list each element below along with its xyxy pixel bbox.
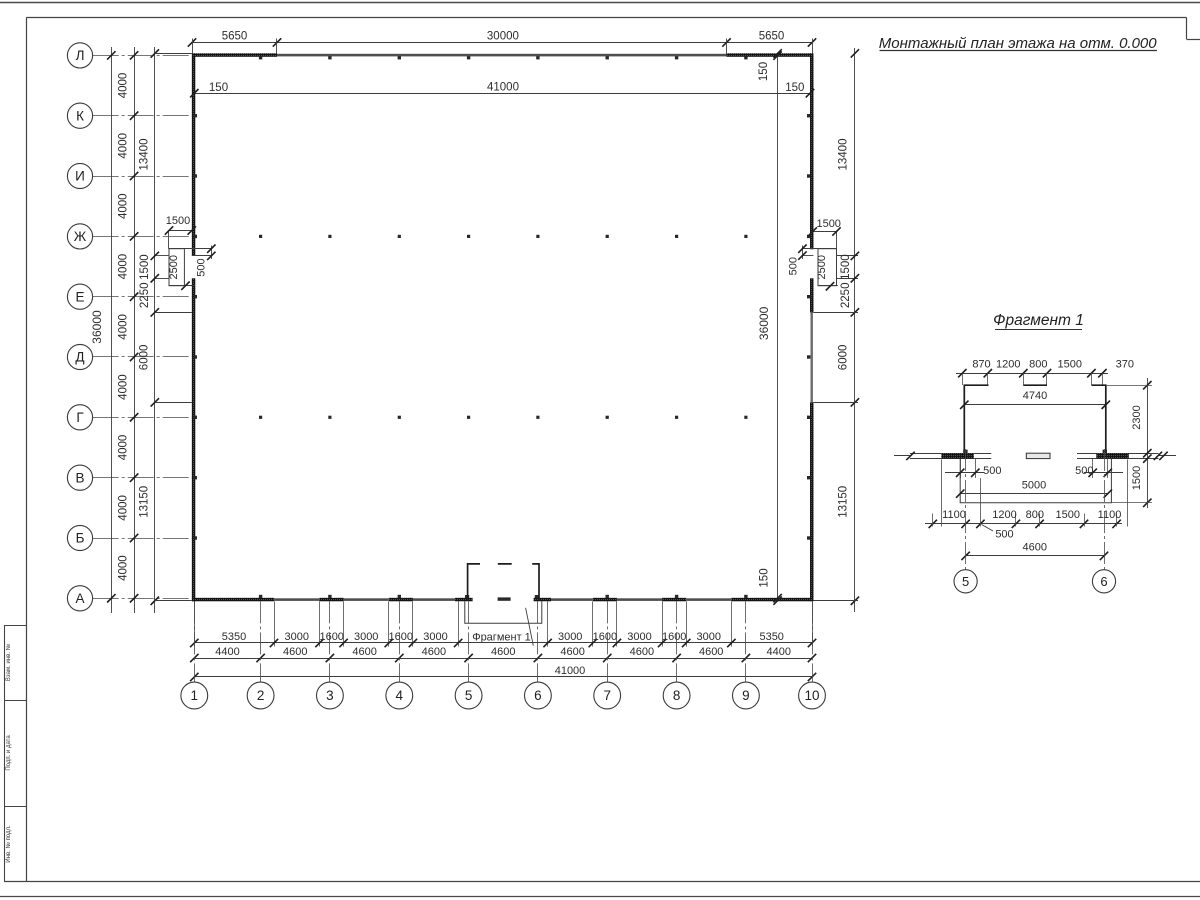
svg-text:3000: 3000 xyxy=(285,631,309,643)
svg-text:5: 5 xyxy=(465,688,473,703)
svg-text:К: К xyxy=(76,108,84,123)
svg-text:4600: 4600 xyxy=(1023,542,1047,554)
svg-text:1500: 1500 xyxy=(816,218,840,230)
svg-text:1600: 1600 xyxy=(389,631,413,643)
svg-text:6: 6 xyxy=(534,688,542,703)
svg-text:3: 3 xyxy=(326,688,334,703)
svg-text:6000: 6000 xyxy=(838,345,850,371)
svg-text:4000: 4000 xyxy=(117,73,129,99)
svg-text:13150: 13150 xyxy=(138,486,150,518)
svg-text:Е: Е xyxy=(75,289,84,304)
svg-text:2500: 2500 xyxy=(168,255,180,279)
svg-text:4000: 4000 xyxy=(117,495,129,521)
svg-text:4000: 4000 xyxy=(117,435,129,461)
svg-text:2500: 2500 xyxy=(816,255,828,279)
svg-text:Г: Г xyxy=(76,410,84,425)
svg-text:3000: 3000 xyxy=(697,631,721,643)
svg-text:Инв. № подл.: Инв. № подл. xyxy=(5,825,12,863)
svg-text:1600: 1600 xyxy=(319,631,343,643)
svg-text:150: 150 xyxy=(209,82,228,94)
svg-text:4600: 4600 xyxy=(422,646,446,658)
svg-text:1500: 1500 xyxy=(139,254,151,280)
svg-text:Л: Л xyxy=(76,48,85,63)
svg-text:3000: 3000 xyxy=(423,631,447,643)
svg-text:8: 8 xyxy=(673,688,681,703)
svg-text:4000: 4000 xyxy=(117,254,129,280)
svg-text:36000: 36000 xyxy=(90,310,104,344)
svg-text:5350: 5350 xyxy=(222,631,246,643)
svg-text:4600: 4600 xyxy=(630,646,654,658)
svg-text:500: 500 xyxy=(995,529,1013,541)
svg-text:800: 800 xyxy=(1029,358,1047,370)
svg-text:1200: 1200 xyxy=(992,509,1016,521)
svg-text:2250: 2250 xyxy=(139,283,151,309)
svg-text:370: 370 xyxy=(1116,358,1134,370)
svg-text:Фрагмент 1: Фрагмент 1 xyxy=(472,632,531,644)
svg-text:Б: Б xyxy=(76,531,85,546)
svg-text:4400: 4400 xyxy=(767,646,791,658)
svg-text:5350: 5350 xyxy=(759,631,783,643)
svg-text:13150: 13150 xyxy=(838,486,850,518)
svg-text:41000: 41000 xyxy=(555,665,586,677)
svg-text:Монтажный план этажа на отм. 0: Монтажный план этажа на отм. 0.000 xyxy=(879,35,1157,52)
svg-text:1200: 1200 xyxy=(996,358,1020,370)
svg-text:800: 800 xyxy=(1026,509,1044,521)
svg-text:А: А xyxy=(75,591,84,606)
svg-text:6: 6 xyxy=(1100,574,1107,589)
svg-text:Взам. инв. №: Взам. инв. № xyxy=(5,644,12,681)
svg-text:1500: 1500 xyxy=(1056,509,1080,521)
svg-text:1500: 1500 xyxy=(166,215,190,227)
svg-text:13400: 13400 xyxy=(838,139,850,171)
svg-text:1500: 1500 xyxy=(1058,358,1082,370)
svg-text:13400: 13400 xyxy=(138,139,150,171)
svg-text:4000: 4000 xyxy=(117,314,129,340)
svg-text:4740: 4740 xyxy=(1023,390,1047,402)
svg-text:9: 9 xyxy=(742,688,750,703)
svg-text:4: 4 xyxy=(396,688,404,703)
svg-text:36000: 36000 xyxy=(757,306,771,340)
svg-text:5650: 5650 xyxy=(759,31,785,43)
svg-text:5: 5 xyxy=(962,574,969,589)
svg-text:Ж: Ж xyxy=(74,229,87,244)
svg-text:4600: 4600 xyxy=(560,646,584,658)
svg-text:1600: 1600 xyxy=(662,631,686,643)
svg-text:4000: 4000 xyxy=(117,133,129,159)
svg-text:3000: 3000 xyxy=(354,631,378,643)
svg-text:И: И xyxy=(75,169,85,184)
svg-text:150: 150 xyxy=(759,568,771,587)
svg-text:4600: 4600 xyxy=(352,646,376,658)
svg-text:2300: 2300 xyxy=(1131,405,1143,429)
svg-text:1100: 1100 xyxy=(942,509,966,521)
svg-text:Подп. и дата: Подп. и дата xyxy=(6,735,12,771)
svg-text:150: 150 xyxy=(758,62,770,81)
svg-text:1100: 1100 xyxy=(1098,509,1122,521)
svg-text:500: 500 xyxy=(1075,465,1093,477)
svg-text:4600: 4600 xyxy=(283,646,307,658)
svg-text:4000: 4000 xyxy=(117,555,129,581)
svg-text:4400: 4400 xyxy=(215,646,239,658)
svg-text:41000: 41000 xyxy=(487,82,519,94)
svg-text:4600: 4600 xyxy=(491,646,515,658)
svg-text:2250: 2250 xyxy=(840,283,852,309)
svg-text:1: 1 xyxy=(191,688,199,703)
svg-text:2: 2 xyxy=(257,688,265,703)
svg-text:1500: 1500 xyxy=(840,254,852,280)
svg-text:500: 500 xyxy=(196,258,208,276)
svg-text:Фрагмент 1: Фрагмент 1 xyxy=(993,312,1084,329)
svg-text:870: 870 xyxy=(972,358,990,370)
svg-text:В: В xyxy=(75,470,84,485)
svg-text:4000: 4000 xyxy=(117,193,129,219)
svg-text:6000: 6000 xyxy=(138,345,150,371)
svg-text:3000: 3000 xyxy=(627,631,651,643)
svg-text:5650: 5650 xyxy=(222,31,248,43)
svg-text:30000: 30000 xyxy=(487,31,519,43)
svg-text:150: 150 xyxy=(785,82,804,94)
svg-text:1600: 1600 xyxy=(593,631,617,643)
svg-text:4600: 4600 xyxy=(699,646,723,658)
svg-text:5000: 5000 xyxy=(1022,479,1046,491)
svg-text:3000: 3000 xyxy=(558,631,582,643)
svg-text:4000: 4000 xyxy=(117,374,129,400)
svg-text:10: 10 xyxy=(804,688,819,703)
svg-text:Д: Д xyxy=(75,350,84,365)
svg-text:1500: 1500 xyxy=(1131,466,1143,490)
svg-text:500: 500 xyxy=(788,257,800,275)
svg-text:500: 500 xyxy=(983,465,1001,477)
svg-text:7: 7 xyxy=(603,688,611,703)
